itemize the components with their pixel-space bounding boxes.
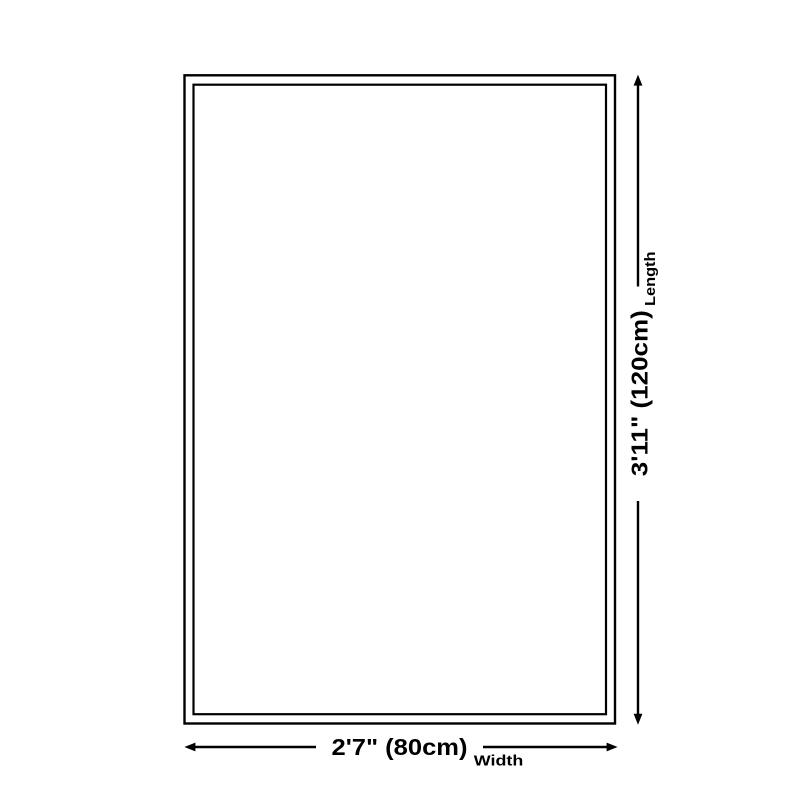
svg-text:Length: Length — [642, 252, 659, 307]
svg-text:2'7" (80cm): 2'7" (80cm) — [332, 734, 468, 760]
svg-text:Width: Width — [474, 752, 524, 769]
svg-text:3'11" (120cm): 3'11" (120cm) — [627, 310, 653, 476]
